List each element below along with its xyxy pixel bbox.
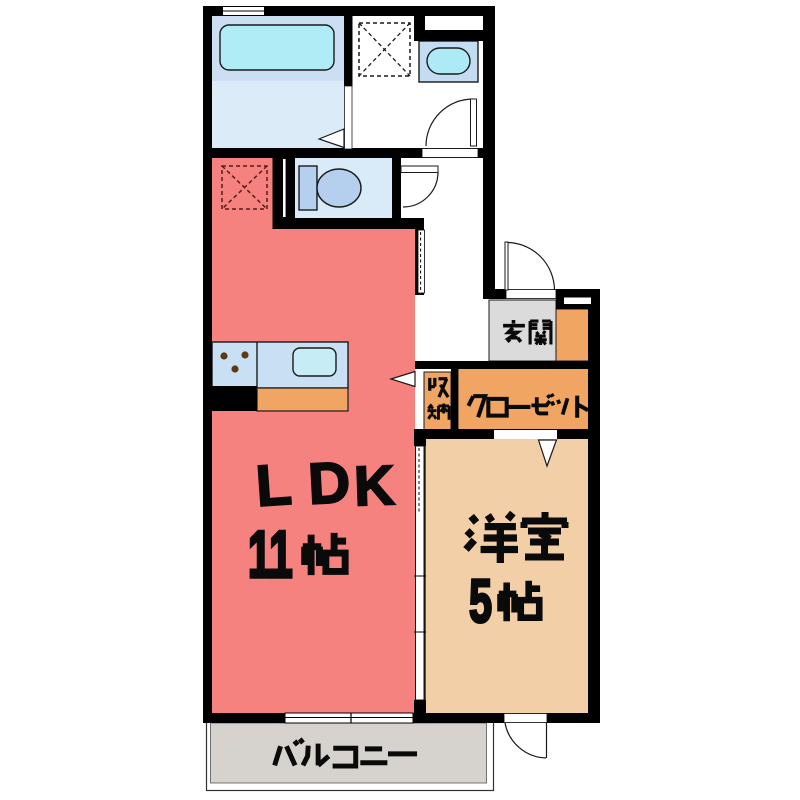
svg-text:K: K xyxy=(353,453,396,517)
svg-text:L: L xyxy=(254,452,294,519)
svg-text:11: 11 xyxy=(248,517,293,591)
svg-text:D: D xyxy=(307,450,352,517)
svg-text:5: 5 xyxy=(469,568,492,636)
